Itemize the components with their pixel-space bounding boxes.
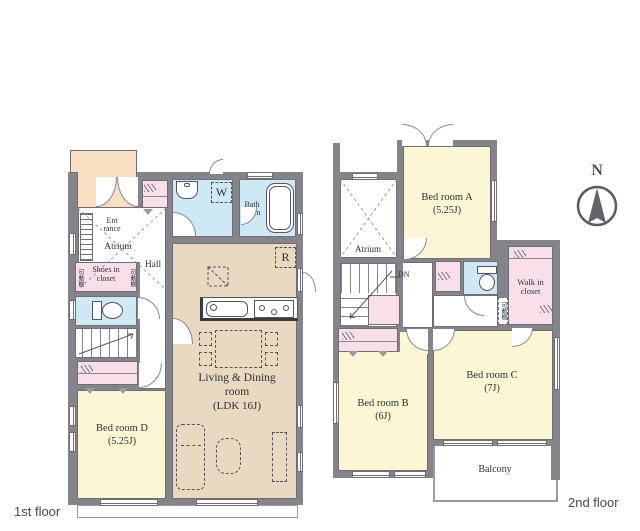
window <box>352 173 378 180</box>
bedroom-a-label-1: Bed room A <box>403 192 491 204</box>
toilet-bowl <box>102 302 123 319</box>
washing-machine-label: W <box>211 185 232 199</box>
tv-board <box>272 432 287 482</box>
window <box>497 440 547 446</box>
dining-chair <box>199 352 212 366</box>
window <box>69 233 76 255</box>
living-label-2: room <box>177 386 297 400</box>
closet-pole <box>78 373 137 374</box>
folding-door-icon <box>118 388 128 394</box>
back-door <box>209 159 223 174</box>
terrace <box>77 505 298 518</box>
dining-chair <box>265 332 278 346</box>
window <box>69 300 76 320</box>
toilet-tank <box>477 266 497 274</box>
walkin-label-2: closet <box>508 286 553 296</box>
stove-burner <box>271 309 277 315</box>
bedroom-a-label-2: (5.25J) <box>403 205 491 217</box>
hanger-icon <box>342 332 354 340</box>
window <box>443 440 493 446</box>
bedroom-c-label-2: (7J) <box>433 383 551 395</box>
hanger-icon <box>438 272 450 280</box>
bedroom-a-outer-door-right <box>428 124 453 146</box>
balcony-label: Balcony <box>455 464 535 476</box>
stairs-2f-arrow <box>340 263 402 327</box>
window <box>69 432 76 452</box>
floor2-caption: 2nd floor <box>568 495 619 510</box>
floor1-caption: 1st floor <box>14 504 60 519</box>
window <box>491 180 497 222</box>
window <box>352 471 390 478</box>
bedroom-c-label-1: Bed room C <box>433 370 551 382</box>
hanger-icon <box>514 250 526 258</box>
closet-pole <box>339 341 397 342</box>
bedroom-b-label-1: Bed room B <box>339 398 427 410</box>
window <box>297 268 303 292</box>
hanger-icon <box>81 365 93 373</box>
shoes-closet-label-2: closet <box>80 274 132 283</box>
dining-chair <box>265 352 278 366</box>
shelf-label-left: 可動棚 <box>77 266 83 290</box>
sofa-cushion-line <box>181 445 201 446</box>
folding-door-icon <box>378 351 388 357</box>
window <box>297 405 303 428</box>
stove-burner <box>259 305 265 311</box>
corner-cupboard <box>207 266 229 287</box>
sofa <box>176 424 205 490</box>
bedroom-b-label-2: (6J) <box>339 411 427 423</box>
window <box>69 406 76 426</box>
window <box>196 499 258 506</box>
toilet-tank <box>92 301 102 320</box>
atrium-label-1f: Atrium <box>95 242 141 253</box>
compass-needle-icon <box>575 180 619 228</box>
folding-door-icon <box>348 351 358 357</box>
atrium-label-2f: Atrium <box>345 244 391 255</box>
dining-chair <box>199 332 212 346</box>
hanger-icon <box>540 305 552 313</box>
bedroom-d-label-1: Bed room D <box>78 423 166 435</box>
window <box>297 213 303 235</box>
balcony-wall-stub <box>551 443 560 480</box>
hanger-icon <box>144 184 156 192</box>
window <box>554 337 560 390</box>
entrance-label-2: rance <box>92 224 132 233</box>
dn-label: DN <box>398 270 418 279</box>
bedroom-a-outer-door-left <box>402 124 427 146</box>
shelf-label-2f: 可動棚 <box>500 299 506 323</box>
refrigerator-label: R <box>275 250 296 264</box>
stairs-1f-arrow <box>75 328 138 358</box>
floorplan-canvas: W Bath room R <box>0 0 640 531</box>
compass-north-label: N <box>575 162 619 181</box>
folding-door-icon <box>85 388 95 394</box>
window <box>100 499 158 506</box>
folding-door-icon <box>143 209 153 215</box>
living-label-3: (LDK 16J) <box>177 400 297 413</box>
toilet-bowl <box>479 274 495 291</box>
living-label-1: Living & Dining <box>177 372 297 386</box>
window <box>394 471 426 478</box>
window <box>297 452 303 472</box>
kitchen-faucet <box>210 304 217 311</box>
dining-table <box>215 330 262 368</box>
stove-burner <box>283 305 289 311</box>
shelf-label-right: 可動棚 <box>129 266 135 290</box>
bathtub-inner <box>269 186 291 230</box>
window <box>247 172 273 179</box>
closet-pole <box>509 258 552 259</box>
ldk-exterior-door <box>303 272 316 292</box>
porch <box>70 150 137 173</box>
washbasin-faucet <box>184 183 190 187</box>
low-table <box>216 438 241 474</box>
hall-label: Hall <box>138 260 168 271</box>
bedroom-d-label-2: (5.25J) <box>78 436 166 448</box>
closet-pole <box>143 196 167 197</box>
